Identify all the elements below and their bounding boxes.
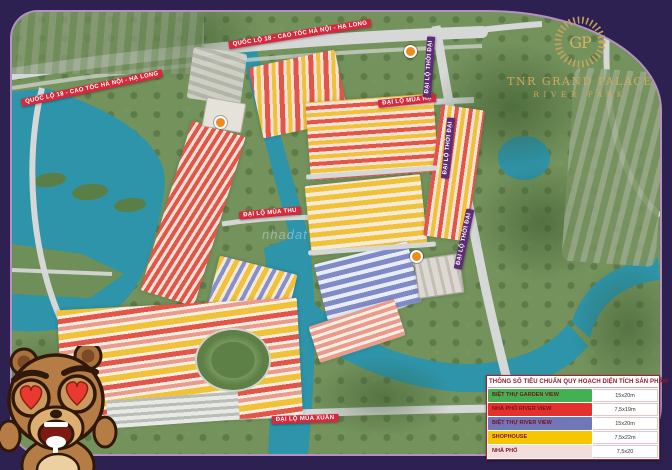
legend-row: BIỆT THỰ GARDEN VIEW15x20m bbox=[488, 389, 658, 402]
legend-title: THÔNG SỐ TIÊU CHUẨN QUY HOẠCH DIỆN TÍCH … bbox=[488, 377, 658, 388]
legend-row-value: 7,5x19m bbox=[593, 403, 658, 416]
svg-text:GP: GP bbox=[569, 33, 592, 52]
legend-table: THÔNG SỐ TIÊU CHUẨN QUY HOẠCH DIỆN TÍCH … bbox=[486, 375, 660, 460]
town-blocks-northwest bbox=[10, 10, 204, 74]
legend-row-value: 15x20m bbox=[593, 389, 658, 402]
poster-frame: QUỐC LỘ 18 - CAO TỐC HÀ NỘI - HẠ LONG QU… bbox=[0, 0, 672, 470]
amenity-marker-icon bbox=[404, 45, 417, 58]
legend-row: NHÀ PHỐ7,5x20 bbox=[488, 445, 658, 458]
town-blocks-north bbox=[187, 46, 248, 105]
legend-row: BIỆT THỰ RIVER VIEW15x20m bbox=[488, 417, 658, 430]
park-circle-southwest bbox=[197, 330, 269, 390]
legend-row-value: 15x20m bbox=[593, 417, 658, 430]
legend-row-label: NHÀ PHỐ RIVER VIEW bbox=[488, 403, 592, 416]
legend-row-label: SHOPHOUSE bbox=[488, 431, 592, 444]
wreath-monogram-icon: GP bbox=[551, 14, 609, 72]
amenity-marker-icon bbox=[410, 250, 423, 263]
legend-row-value: 7,5x22m bbox=[593, 431, 658, 444]
legend-row: SHOPHOUSE7,5x22m bbox=[488, 431, 658, 444]
heart-eyes-bear-sticker bbox=[0, 346, 122, 470]
legend-row-value: 7,5x20 bbox=[593, 445, 658, 458]
legend-rows: BIỆT THỰ GARDEN VIEW15x20mNHÀ PHỐ RIVER … bbox=[488, 389, 658, 458]
watermark-text: nhadat bbox=[262, 227, 308, 242]
legend-row-label: BIỆT THỰ RIVER VIEW bbox=[488, 417, 592, 430]
legend-row-label: BIỆT THỰ GARDEN VIEW bbox=[488, 389, 592, 402]
logo-title: TNR GRAND PALACE bbox=[498, 75, 662, 88]
project-logo: GP TNR GRAND PALACE RIVER PARK bbox=[498, 14, 662, 99]
legend-row: NHÀ PHỐ RIVER VIEW7,5x19m bbox=[488, 403, 658, 416]
amenity-marker-icon bbox=[214, 116, 227, 129]
logo-subtitle: RIVER PARK bbox=[498, 90, 662, 99]
legend-row-label: NHÀ PHỐ bbox=[488, 445, 592, 458]
